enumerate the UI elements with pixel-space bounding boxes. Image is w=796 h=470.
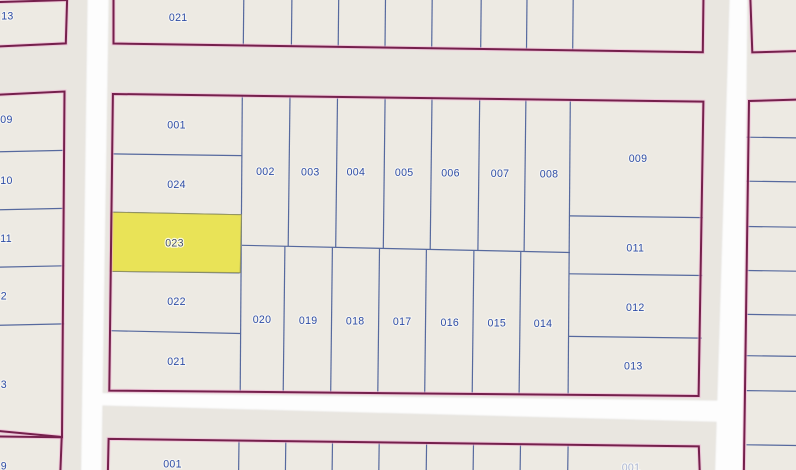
svg-text:10: 10 xyxy=(0,175,12,187)
svg-text:019: 019 xyxy=(299,315,318,327)
svg-text:2: 2 xyxy=(1,290,7,302)
svg-text:021: 021 xyxy=(169,12,188,24)
svg-text:016: 016 xyxy=(441,317,460,329)
svg-text:023: 023 xyxy=(165,237,184,249)
svg-text:024: 024 xyxy=(167,179,186,191)
svg-text:013: 013 xyxy=(624,361,643,373)
svg-text:017: 017 xyxy=(393,316,412,328)
svg-text:012: 012 xyxy=(626,302,645,314)
svg-text:001: 001 xyxy=(163,458,182,470)
svg-text:018: 018 xyxy=(346,316,365,328)
svg-text:13: 13 xyxy=(1,11,13,23)
svg-text:9: 9 xyxy=(1,460,7,470)
svg-text:09: 09 xyxy=(0,114,12,126)
svg-text:004: 004 xyxy=(347,167,366,179)
svg-text:3: 3 xyxy=(1,379,7,391)
svg-text:001: 001 xyxy=(622,462,641,470)
svg-text:014: 014 xyxy=(534,318,553,330)
svg-text:011: 011 xyxy=(626,243,644,255)
svg-text:021: 021 xyxy=(167,356,186,368)
svg-text:11: 11 xyxy=(0,233,12,245)
svg-text:022: 022 xyxy=(167,296,186,308)
svg-text:015: 015 xyxy=(488,318,507,330)
svg-text:002: 002 xyxy=(256,166,275,178)
svg-text:007: 007 xyxy=(491,168,510,180)
svg-text:020: 020 xyxy=(253,314,272,326)
svg-text:001: 001 xyxy=(167,120,186,132)
svg-text:003: 003 xyxy=(301,166,320,178)
svg-text:008: 008 xyxy=(540,169,559,181)
svg-text:005: 005 xyxy=(395,167,414,179)
svg-text:006: 006 xyxy=(441,167,460,179)
svg-text:009: 009 xyxy=(629,153,648,165)
